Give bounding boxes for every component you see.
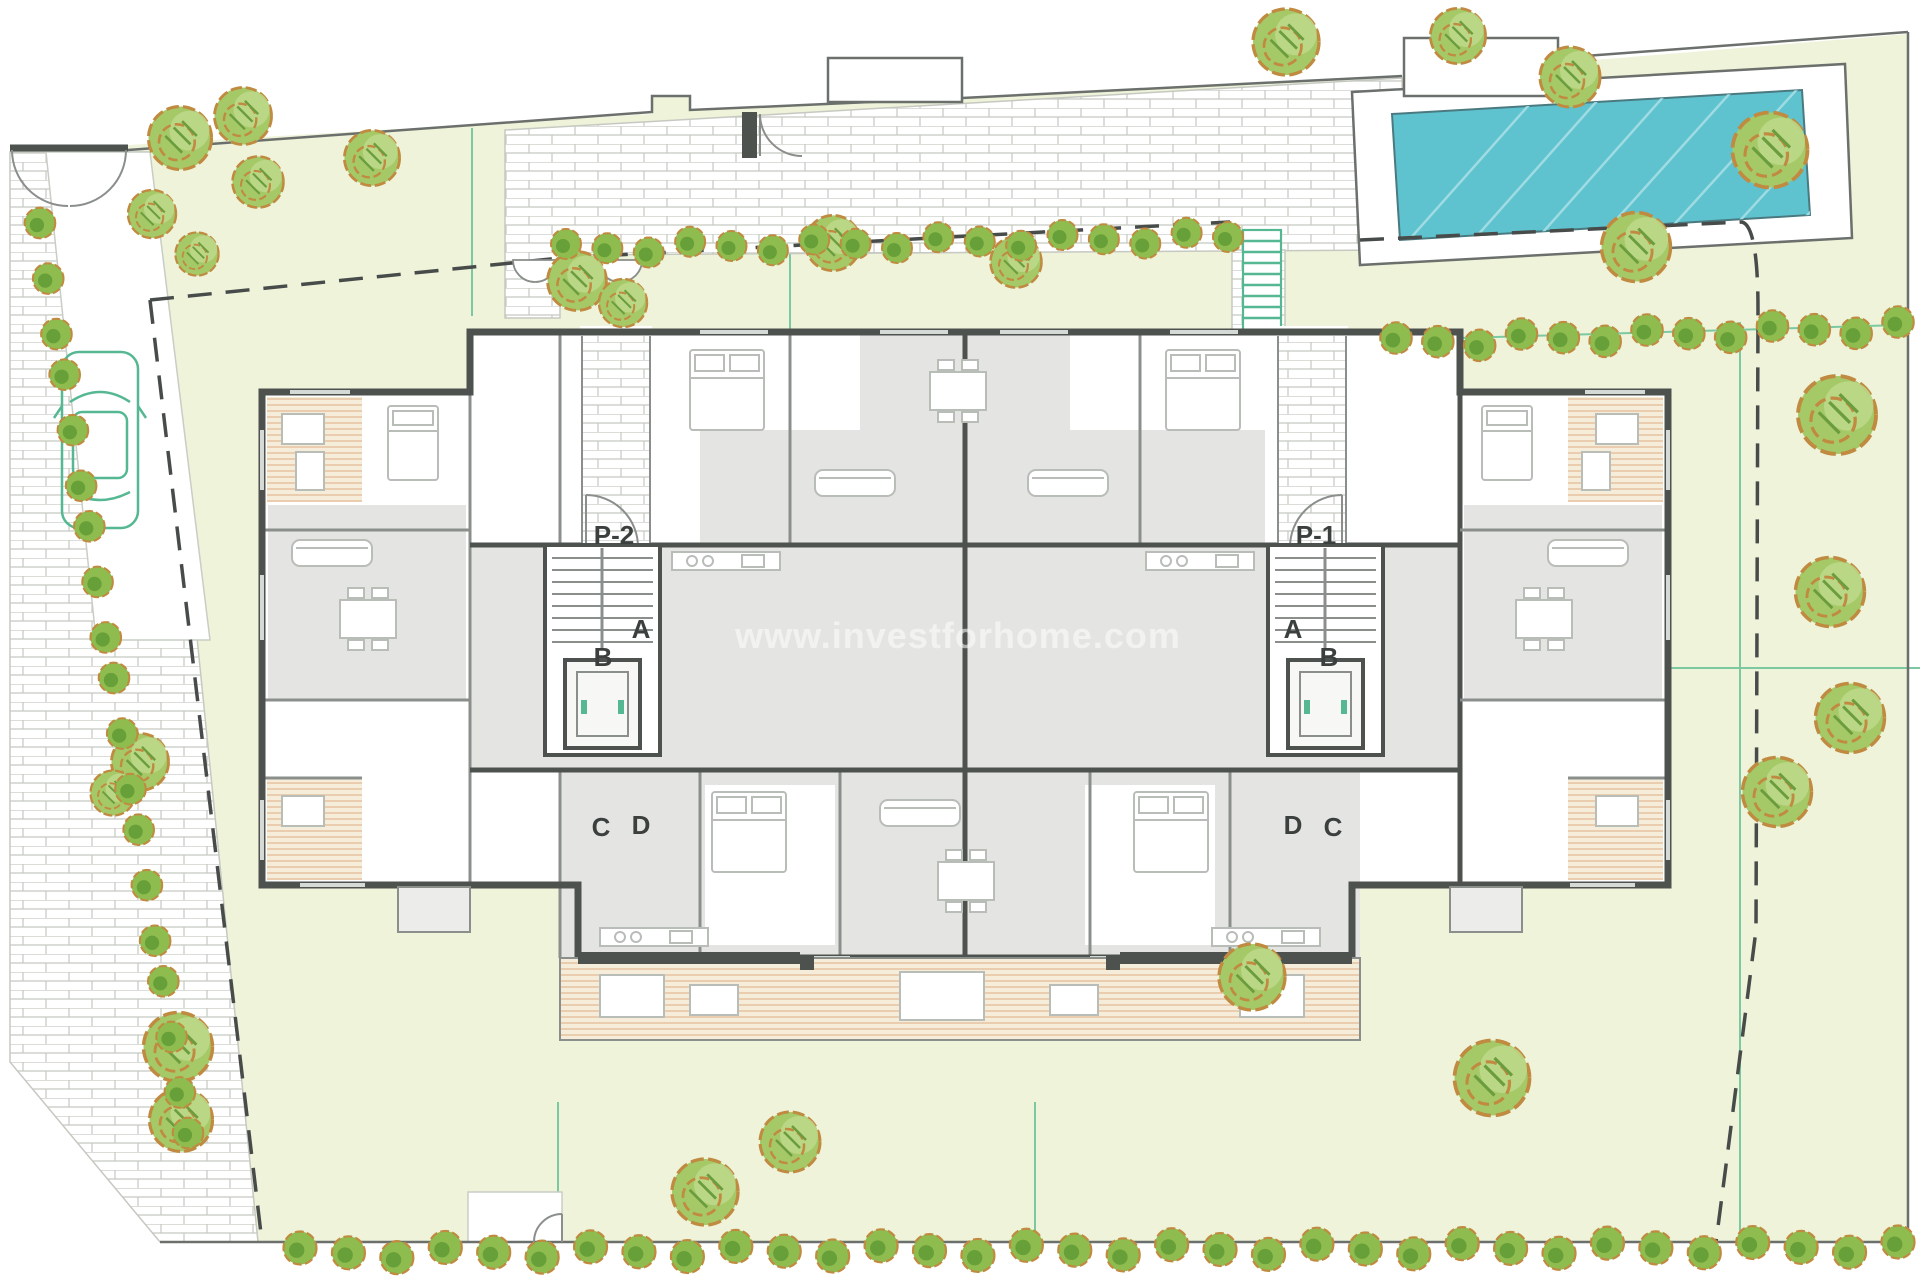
bush-icon: [1380, 322, 1412, 354]
bush-icon: [123, 814, 154, 845]
bush-icon: [1048, 220, 1078, 250]
bush-icon: [380, 1241, 413, 1274]
label-p2: P-2: [594, 520, 634, 550]
bush-icon: [1010, 1229, 1043, 1262]
bush-icon: [1506, 318, 1538, 350]
bush-icon: [1833, 1236, 1866, 1269]
bush-icon: [1589, 326, 1621, 358]
label-p1: P-1: [1296, 520, 1336, 550]
bush-icon: [82, 567, 113, 598]
bush-icon: [140, 925, 171, 956]
balcony: [398, 887, 470, 932]
bush-icon: [33, 263, 64, 294]
bush-icon: [49, 359, 80, 390]
bush-icon: [1631, 314, 1663, 346]
bush-icon: [132, 870, 163, 901]
bush-icon: [675, 227, 705, 257]
bush-icon: [90, 622, 121, 653]
ladder-icon: [1243, 230, 1281, 332]
bush-icon: [1300, 1228, 1333, 1261]
bush-icon: [1688, 1236, 1721, 1269]
bush-icon: [551, 229, 581, 259]
elevator-icon: [1288, 660, 1363, 748]
bush-icon: [1785, 1231, 1818, 1264]
bush-icon: [1715, 322, 1747, 354]
bush-icon: [758, 235, 788, 265]
neighbour-structure: [828, 58, 962, 102]
elevator-icon: [565, 660, 640, 748]
bush-icon: [1591, 1227, 1624, 1260]
bush-icon: [74, 511, 105, 542]
bush-icon: [1494, 1232, 1527, 1265]
bush-icon: [156, 1022, 187, 1053]
bush-icon: [1155, 1228, 1188, 1261]
label-a-right: A: [1284, 614, 1303, 644]
bush-icon: [1422, 326, 1454, 358]
label-d-left: D: [632, 810, 651, 840]
bush-icon: [1548, 322, 1580, 354]
bush-icon: [1543, 1237, 1576, 1270]
bush-icon: [1882, 306, 1914, 338]
bush-icon: [1840, 318, 1872, 350]
bush-icon: [41, 319, 72, 350]
bush-icon: [1006, 231, 1036, 261]
bush-icon: [1058, 1234, 1091, 1267]
gate-pier: [742, 112, 757, 158]
label-c-right: C: [1324, 812, 1343, 842]
bush-icon: [148, 966, 179, 997]
bush-icon: [66, 470, 97, 501]
bush-icon: [1204, 1233, 1237, 1266]
bush-icon: [1213, 222, 1243, 252]
balcony: [1450, 887, 1522, 932]
bush-icon: [592, 233, 622, 263]
bush-icon: [865, 1229, 898, 1262]
bush-icon: [1736, 1226, 1769, 1259]
entry-corridor-p1: [1278, 332, 1346, 545]
bush-icon: [1252, 1238, 1285, 1271]
bush-icon: [477, 1236, 510, 1269]
bush-icon: [164, 1077, 195, 1108]
bush-icon: [1799, 314, 1831, 346]
bush-icon: [882, 233, 912, 263]
bush-icon: [1349, 1233, 1382, 1266]
bush-icon: [799, 225, 829, 255]
bush-icon: [1464, 330, 1496, 362]
bush-icon: [913, 1234, 946, 1267]
bush-icon: [1446, 1227, 1479, 1260]
bush-icon: [1639, 1231, 1672, 1264]
label-b-right: B: [1320, 642, 1339, 672]
site-plan-page: P-2 P-1 A B A B C D D C www.investforhom…: [0, 0, 1920, 1280]
bush-icon: [961, 1239, 994, 1272]
floor-plan-drawing: P-2 P-1 A B A B C D D C www.investforhom…: [0, 0, 1920, 1280]
bush-icon: [58, 415, 89, 446]
bush-icon: [671, 1240, 704, 1273]
bush-icon: [99, 663, 130, 694]
bush-icon: [1882, 1226, 1915, 1259]
label-b-left: B: [594, 642, 613, 672]
bush-icon: [115, 774, 146, 805]
bush-icon: [717, 231, 747, 261]
bush-icon: [25, 208, 56, 239]
bush-icon: [574, 1230, 607, 1263]
bush-icon: [1089, 224, 1119, 254]
bush-icon: [1130, 229, 1160, 259]
bush-icon: [173, 1118, 204, 1149]
bush-icon: [429, 1231, 462, 1264]
bush-icon: [965, 227, 995, 257]
bush-icon: [923, 222, 953, 252]
bush-icon: [284, 1232, 317, 1265]
entry-corridor-p2: [582, 332, 650, 545]
label-a-left: A: [632, 614, 651, 644]
bush-icon: [1757, 310, 1789, 342]
label-d-right: D: [1284, 810, 1303, 840]
bush-icon: [526, 1241, 559, 1274]
bush-icon: [1172, 218, 1202, 248]
bush-icon: [107, 718, 138, 749]
watermark-text: www.investforhome.com: [734, 615, 1181, 656]
bush-icon: [1397, 1237, 1430, 1270]
bush-icon: [768, 1235, 801, 1268]
bush-icon: [841, 229, 871, 259]
bush-icon: [1107, 1238, 1140, 1271]
bush-icon: [816, 1240, 849, 1273]
label-c-left: C: [592, 812, 611, 842]
bush-icon: [719, 1230, 752, 1263]
bush-icon: [332, 1236, 365, 1269]
bush-icon: [1673, 318, 1705, 350]
bush-icon: [634, 238, 664, 268]
bush-icon: [622, 1235, 655, 1268]
